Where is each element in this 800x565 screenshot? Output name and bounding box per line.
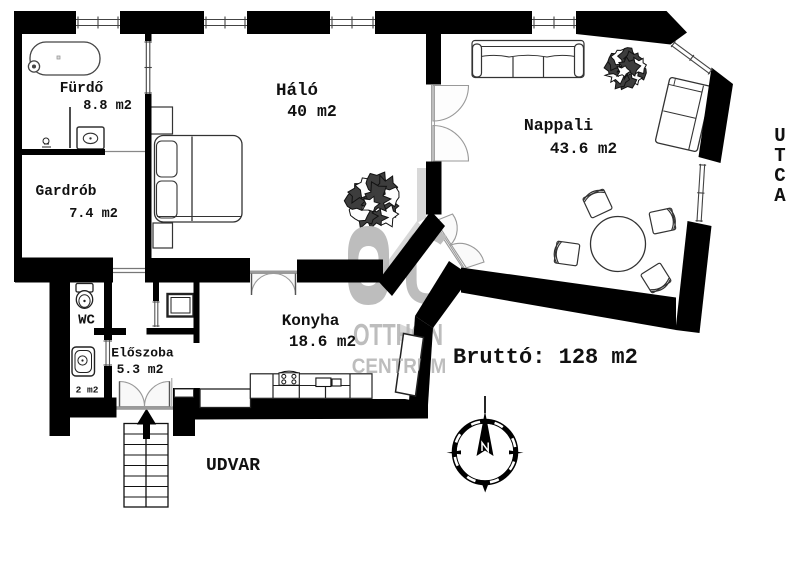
svg-text:T: T <box>774 145 785 167</box>
svg-text:Fürdő: Fürdő <box>60 81 104 97</box>
svg-text:8.8 m2: 8.8 m2 <box>83 99 132 114</box>
svg-text:Háló: Háló <box>276 81 318 101</box>
svg-text:Előszoba: Előszoba <box>111 346 174 361</box>
svg-text:18.6 m2: 18.6 m2 <box>289 333 356 351</box>
svg-text:A: A <box>774 185 786 207</box>
svg-text:2 m2: 2 m2 <box>76 385 99 396</box>
svg-text:Nappali: Nappali <box>524 116 593 135</box>
svg-text:Konyha: Konyha <box>282 312 340 330</box>
svg-text:UDVAR: UDVAR <box>206 456 260 476</box>
svg-text:C: C <box>774 165 785 187</box>
svg-text:WC: WC <box>78 313 95 329</box>
svg-text:5.3 m2: 5.3 m2 <box>117 362 164 377</box>
svg-text:7.4 m2: 7.4 m2 <box>69 207 118 222</box>
svg-text:43.6 m2: 43.6 m2 <box>550 140 617 158</box>
svg-text:Bruttó: 128 m2: Bruttó: 128 m2 <box>453 345 638 370</box>
svg-text:U: U <box>774 125 785 147</box>
svg-text:40 m2: 40 m2 <box>287 102 337 121</box>
svg-text:Gardrób: Gardrób <box>36 184 97 200</box>
